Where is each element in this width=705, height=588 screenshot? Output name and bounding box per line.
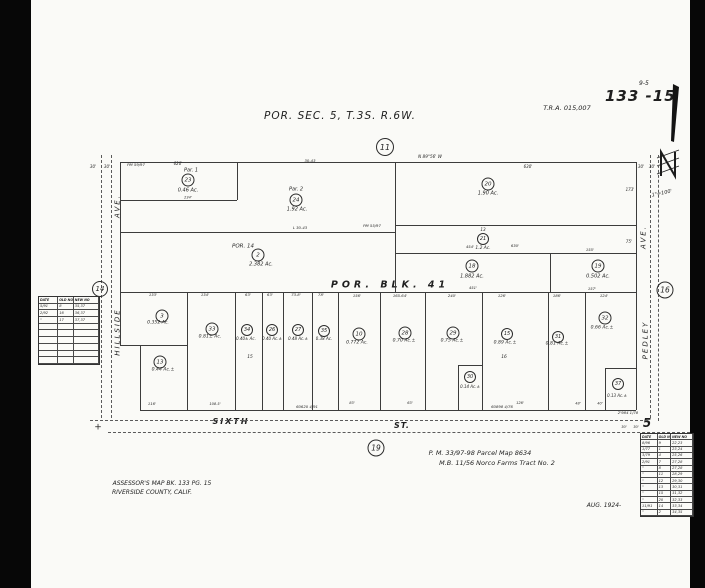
parcel-number-circle: 23	[182, 174, 195, 187]
map-label: 0.502 Ac.	[586, 275, 610, 280]
tra-label: T.R.A. 015,007	[543, 105, 590, 112]
map-label: 630'	[511, 244, 519, 248]
revision-table-cell	[58, 351, 74, 358]
map-label: 108.5'	[209, 403, 220, 407]
map-label: 124'	[600, 294, 608, 298]
parcel-boundary-line	[262, 292, 263, 410]
map-label: 16	[501, 356, 507, 360]
street-pedley-ave-label: AVE.	[641, 225, 648, 249]
revision-table-cell: 5/91	[39, 304, 58, 311]
parcel-number-circle: 29	[447, 327, 460, 340]
map-label: 0.81 Ac.±	[546, 343, 569, 348]
map-label: 234'	[184, 196, 192, 200]
parcel-boundary-line	[636, 162, 637, 410]
revision-table-cell	[39, 351, 58, 358]
map-label: 30-43	[304, 159, 315, 163]
section-number-5: 5	[643, 417, 651, 429]
map-label: 30'	[90, 165, 96, 169]
map-label: 0.81± Ac.	[199, 336, 222, 341]
parcel-boundary-line	[585, 292, 586, 410]
map-label: 0.38 Ac.	[316, 337, 332, 341]
assessor-note-2: RIVERSIDE COUNTY, CALIF.	[112, 490, 192, 496]
revision-table-cell	[74, 344, 99, 351]
parcel-boundary-line	[120, 345, 187, 346]
map-label: 134'	[201, 293, 209, 297]
parcel-boundary-line	[120, 162, 121, 346]
map-label: 78'	[318, 293, 324, 297]
map-label: 0.48 Ac.±	[288, 337, 308, 341]
map-label: 630'	[524, 165, 533, 169]
revision-table-cell	[58, 337, 74, 344]
parcel-number-circle: 2	[252, 249, 265, 262]
revision-table-cell	[58, 330, 74, 337]
map-label: 1.90 Ac.	[478, 192, 498, 197]
map-label: 63'	[267, 293, 273, 297]
parcel-boundary-line	[120, 232, 395, 233]
parcel-boundary-line	[120, 200, 237, 201]
parcel-boundary-line	[140, 410, 636, 411]
parcel-number-circle: 27	[292, 324, 304, 336]
parcel-boundary-line	[482, 292, 483, 410]
parcel-boundary-line	[312, 292, 313, 410]
revision-table-cell	[74, 324, 99, 331]
north-arrow-icon	[655, 84, 695, 188]
map-label: 1.92 Ac.	[287, 208, 307, 213]
map-title: POR. SEC. 5, T.3S. R.6W.	[264, 111, 416, 122]
map-label: N 89°56' W	[418, 155, 442, 159]
parcel-boundary-line	[187, 292, 188, 410]
map-label: 30'	[633, 426, 639, 430]
parcel-boundary-line	[605, 368, 606, 410]
map-label: 2.382 Ac.	[249, 263, 273, 268]
map-label: 60620 4/91	[296, 405, 318, 409]
map-label: 83'	[349, 402, 355, 406]
parcel-boundary-line	[140, 345, 141, 410]
map-label: 1.2 Ac.	[475, 247, 490, 251]
map-label: 15	[247, 356, 253, 360]
parcel-number-circle: 24	[290, 194, 303, 207]
parcel-number-circle: 34	[241, 324, 253, 336]
map-label: 0.70 Ac.±	[393, 340, 416, 345]
map-label: 13	[480, 228, 485, 232]
map-label: 155'	[586, 248, 594, 252]
map-label: POR. 14	[232, 244, 254, 250]
map-label: 30'	[104, 165, 110, 169]
revision-table-cell	[74, 357, 99, 364]
parcel-boundary-line	[548, 292, 549, 410]
parcel-number-circle: 10	[353, 328, 366, 341]
parcel-boundary-line	[550, 253, 551, 292]
revision-table-right: DATEOLD NONEW NO8/96922,231/77123,243/79…	[640, 433, 694, 517]
parcel-number-circle: 30	[464, 371, 476, 383]
parcel-number-circle: 11	[376, 138, 394, 156]
street-centerline	[111, 155, 112, 418]
map-label: 40'	[597, 402, 602, 406]
revision-table-cell: 36,37	[74, 310, 99, 317]
parcel-number-circle: 37	[612, 378, 624, 390]
revision-table-header: OLD NO	[58, 297, 74, 304]
parcel-number-circle: 32	[599, 312, 612, 325]
map-label: 620'	[174, 162, 183, 166]
map-label: 63'	[245, 293, 251, 297]
parcel-boundary-line	[395, 253, 636, 254]
revision-table-cell: 37,37	[74, 317, 99, 324]
parcel-boundary-line	[283, 292, 284, 410]
parcel-number-circle: 18	[466, 260, 479, 273]
map-label: PM 59/97	[127, 163, 145, 167]
parcel-number-circle: 14	[92, 281, 108, 297]
revision-table-cell: "	[39, 317, 58, 324]
map-label: 126'	[498, 294, 506, 298]
map-label: 30'	[638, 165, 644, 169]
revision-table-cell	[39, 344, 58, 351]
parcel-boundary-line	[120, 162, 636, 163]
street-centerline	[108, 432, 690, 433]
parcel-number-circle: 16	[657, 282, 674, 299]
revision-table-cell	[74, 330, 99, 337]
date-note: AUG. 1924-	[587, 503, 621, 509]
revision-table-cell: "	[641, 510, 658, 516]
map-label: 451'	[469, 286, 477, 290]
map-label: 0.40 Ac.±	[262, 337, 282, 341]
map-label: 0.75 Ac.±	[441, 340, 464, 345]
revision-table-cell	[39, 337, 58, 344]
map-label: 0.46 Ac.	[178, 189, 198, 194]
map-label: 1.882 Ac.	[460, 275, 484, 280]
map-label: 0.352 Ac.	[147, 322, 169, 327]
map-label: 133'	[149, 293, 157, 297]
revision-table-left: DATEOLD NONEW NO5/91835,372/921636,37"17…	[38, 296, 100, 365]
parcel-boundary-line	[395, 225, 636, 226]
map-label: +	[94, 424, 102, 433]
parcel-boundary-line	[338, 292, 339, 410]
reference-note-2: M.B. 11/56 Norco Farms Tract No. 2	[439, 460, 555, 467]
map-label: PM 55/97	[363, 224, 381, 228]
map-label: Par. 1	[184, 169, 198, 174]
revision-table-cell	[58, 324, 74, 331]
map-label: 48'	[575, 402, 580, 406]
map-label: 0.14 Ac.±	[460, 385, 480, 389]
parcel-boundary-line	[235, 292, 236, 410]
map-label: 116'	[148, 402, 156, 406]
parcel-boundary-line	[458, 365, 459, 410]
parcel-number-circle: 26	[266, 324, 278, 336]
map-label: 60898 4/76	[491, 405, 513, 409]
map-label: 0.44 Ac.±	[152, 369, 175, 374]
parcel-number-circle: 19	[592, 260, 605, 273]
map-label: 156'	[353, 294, 361, 298]
map-label: 30'	[649, 165, 655, 169]
parcel-number-circle: 33	[206, 323, 219, 336]
scanned-map-page: { "page": { "title": "POR. SEC. 5, T.3S.…	[0, 0, 705, 588]
parcel-boundary-line	[458, 365, 482, 366]
revision-table-cell	[39, 324, 58, 331]
map-label: 0.40± Ac.	[236, 337, 256, 341]
street-pedley-label: PEDLEY	[643, 321, 650, 360]
revision-table-header: NEW NO	[74, 297, 99, 304]
parcel-number-circle: 13	[154, 356, 167, 369]
reference-note-1: P. M. 33/97-98 Parcel Map 8634	[429, 450, 532, 457]
map-label: 30'	[621, 426, 627, 430]
parcel-boundary-line	[237, 162, 238, 200]
map-label: 0.89 Ac.±	[494, 342, 517, 347]
map-label: 2'984 1/78	[618, 411, 638, 415]
map-label: Par. 2	[289, 188, 303, 193]
parcel-number-circle: 15	[501, 328, 513, 340]
revision-table-cell	[58, 344, 74, 351]
revision-table-cell: 35,37	[74, 304, 99, 311]
map-label: 173'	[626, 188, 635, 192]
parcel-boundary-line	[395, 162, 396, 292]
revision-table-cell: 17	[58, 317, 74, 324]
revision-table-cell	[39, 330, 58, 337]
map-label: 157'	[588, 287, 596, 291]
parcel-number-circle: 21	[477, 233, 489, 245]
parcel-number-circle: 20	[482, 178, 495, 191]
revision-table-cell: 8	[58, 304, 74, 311]
parcel-boundary-line	[425, 292, 426, 410]
map-label: 240'	[448, 294, 456, 298]
map-label: 73.8'	[291, 293, 301, 297]
revision-table-cell: 16	[58, 310, 74, 317]
revision-table-cell	[74, 337, 99, 344]
parcel-number-circle: 28	[399, 327, 412, 340]
parcel-boundary-line	[605, 368, 636, 369]
map-label: 0.66 Ac.±	[591, 327, 614, 332]
block-label: POR. BLK. 41	[331, 280, 449, 290]
map-label: 0.13 Ac.±	[607, 394, 627, 398]
revision-table-cell: 34,35	[671, 510, 693, 516]
map-label: 186'	[553, 294, 561, 298]
revision-table-cell	[74, 351, 99, 358]
revision-table-cell	[58, 357, 74, 364]
revision-table-header: DATE	[39, 297, 58, 304]
map-label: 126'	[516, 402, 524, 406]
map-label: 63'	[407, 402, 413, 406]
parcel-number-circle: 19	[368, 440, 385, 457]
map-label: 75'	[626, 240, 632, 244]
map-label: 0.772 Ac.	[346, 342, 368, 347]
map-label: 454'	[466, 245, 474, 249]
revision-table-cell: 2/92	[39, 310, 58, 317]
sheet-number-sup: 9-5	[639, 80, 649, 87]
map-label: 165.64'	[393, 294, 407, 298]
street-centerline	[650, 155, 651, 418]
revision-table-cell	[39, 357, 58, 364]
street-sixth-st-label: ST.	[391, 422, 413, 430]
assessor-note-1: ASSESSOR'S MAP BK. 133 PG. 15	[113, 481, 212, 487]
map-label: L 30-43	[293, 226, 307, 230]
revision-table-cell: 2	[658, 510, 672, 516]
parcel-boundary-line	[380, 292, 381, 410]
street-centerline	[90, 420, 648, 421]
